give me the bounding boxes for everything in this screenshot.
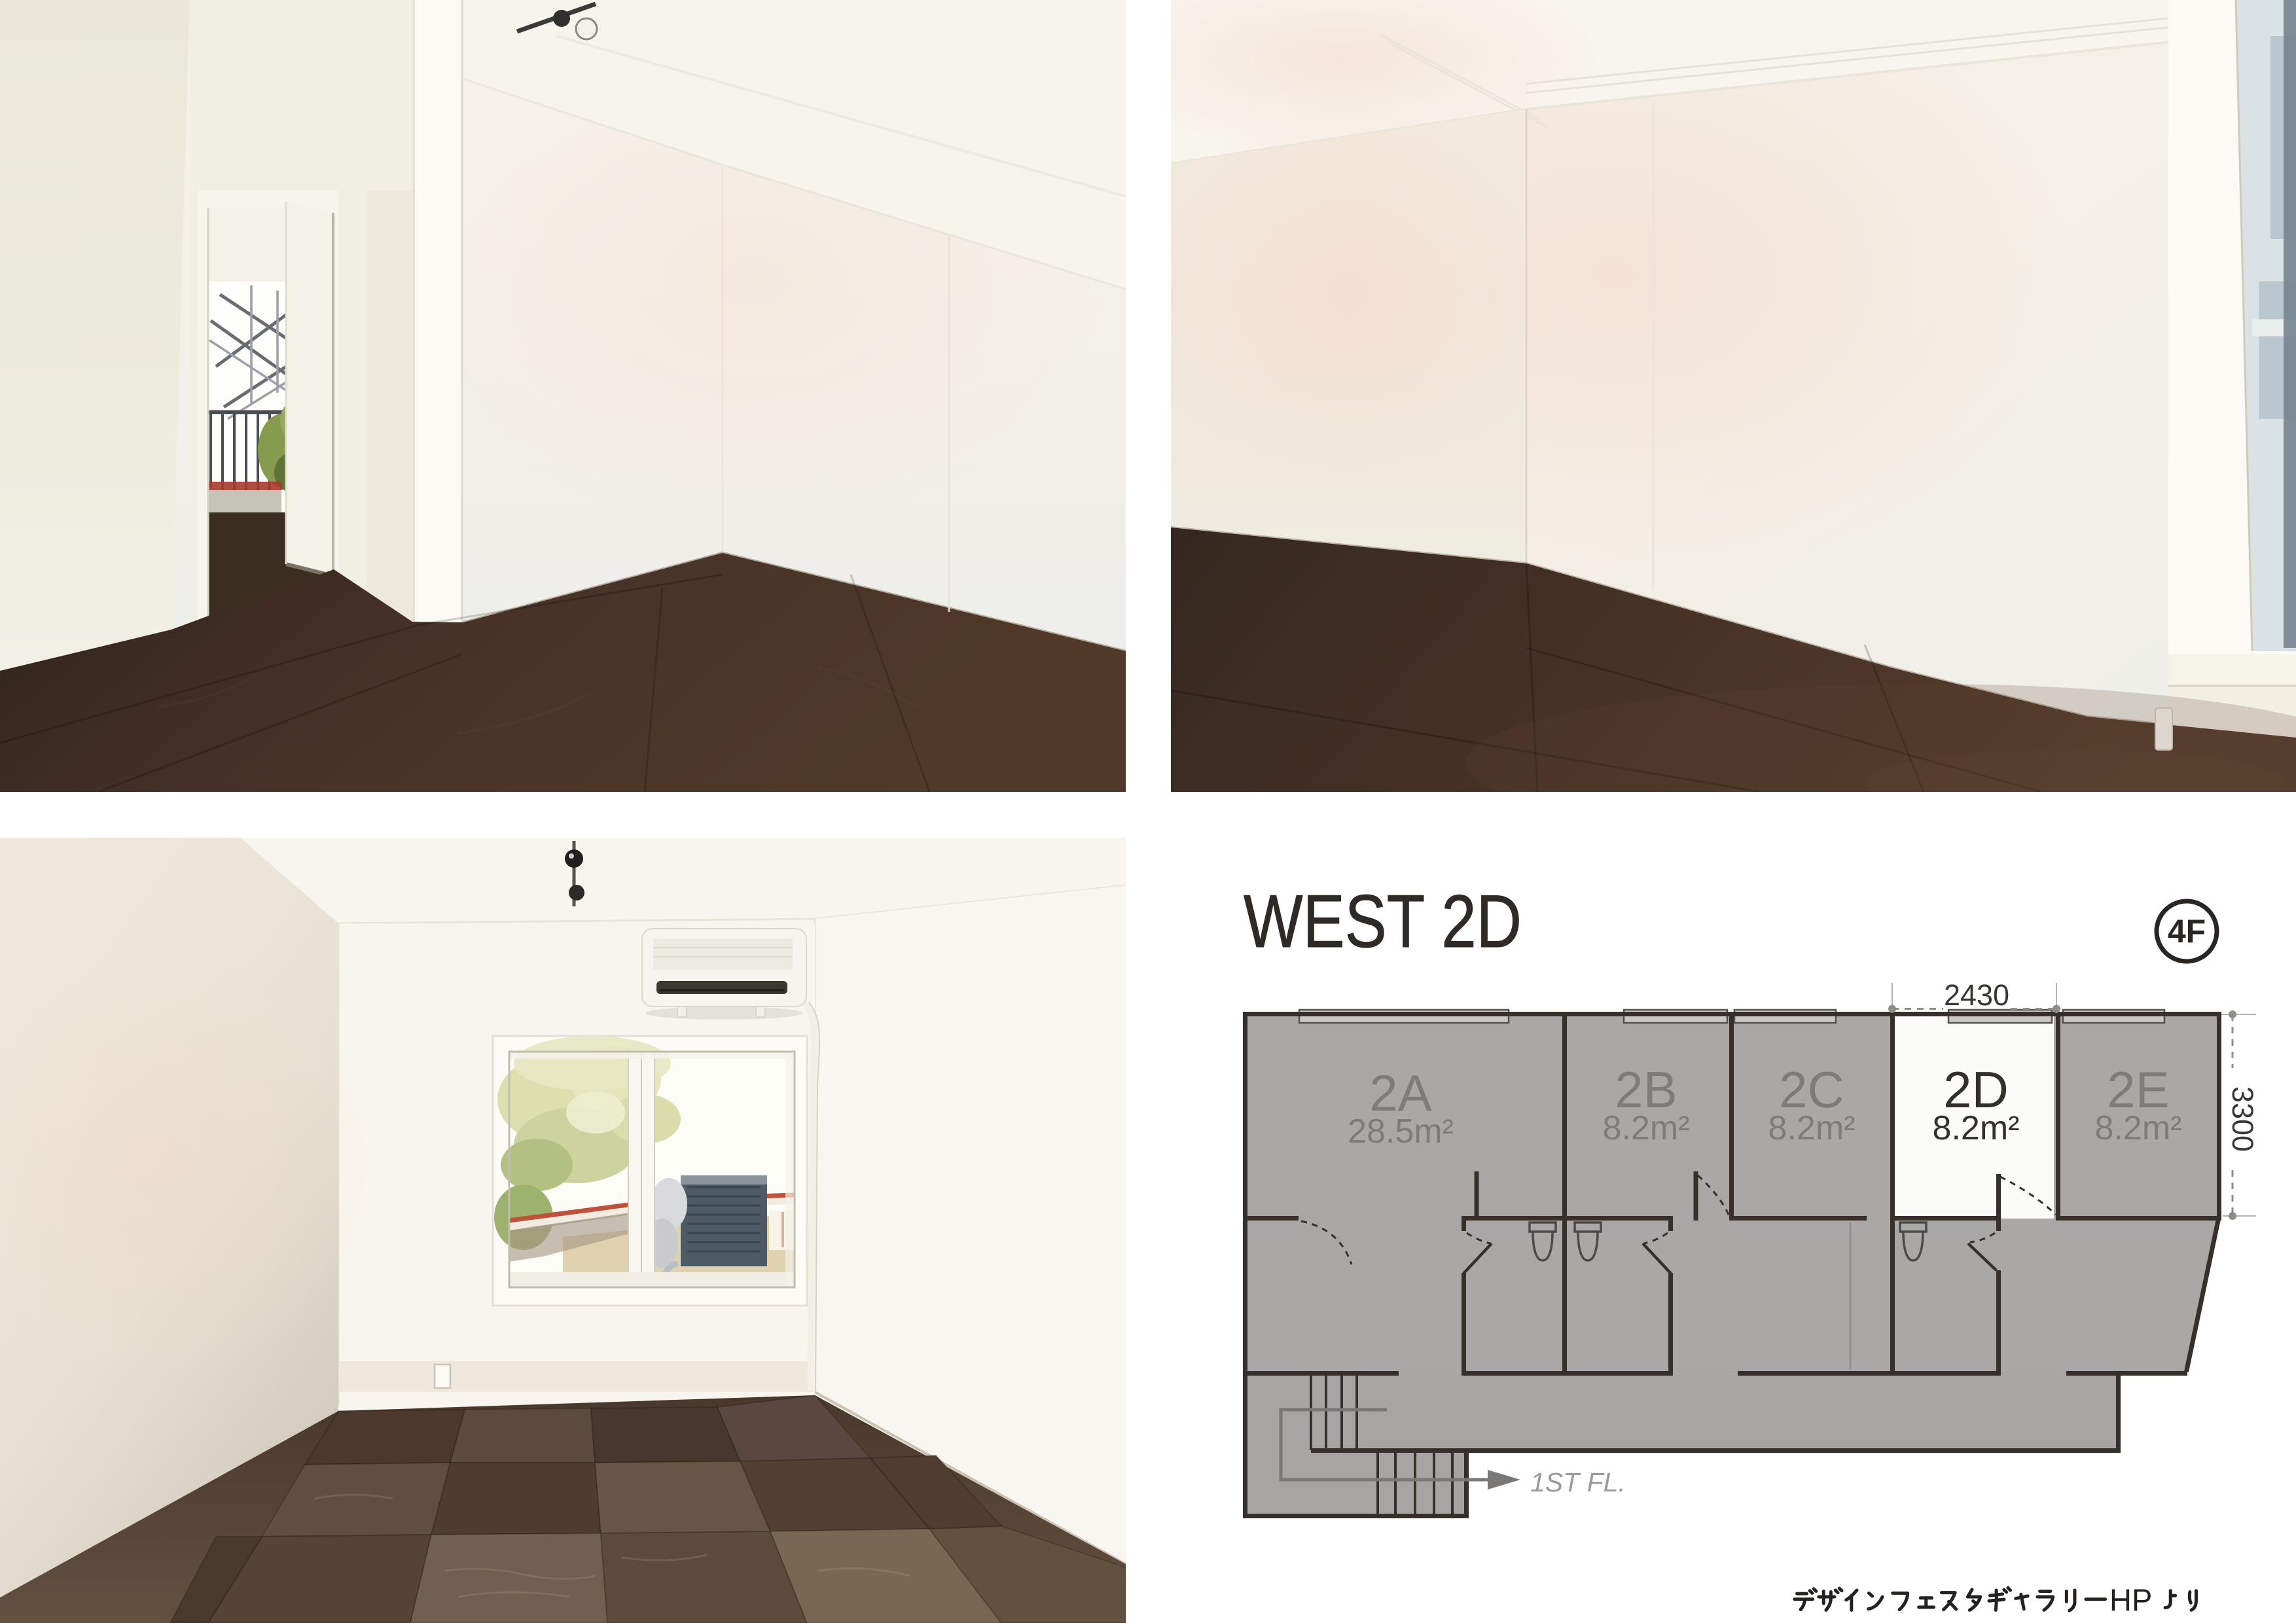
svg-text:WEST 2D: WEST 2D bbox=[1244, 880, 1522, 963]
svg-text:8.2m²: 8.2m² bbox=[1603, 1109, 1690, 1147]
svg-text:8.2m²: 8.2m² bbox=[1768, 1109, 1856, 1147]
svg-text:1ST FL.: 1ST FL. bbox=[1530, 1467, 1626, 1497]
svg-text:HP: HP bbox=[2109, 1582, 2152, 1617]
svg-text:8.2m²: 8.2m² bbox=[1933, 1109, 2020, 1147]
svg-text:3300: 3300 bbox=[2226, 1086, 2259, 1152]
svg-text:2430: 2430 bbox=[1944, 978, 2009, 1012]
svg-text:4F: 4F bbox=[2168, 913, 2206, 950]
svg-text:28.5m²: 28.5m² bbox=[1348, 1113, 1454, 1150]
svg-text:8.2m²: 8.2m² bbox=[2095, 1109, 2182, 1147]
